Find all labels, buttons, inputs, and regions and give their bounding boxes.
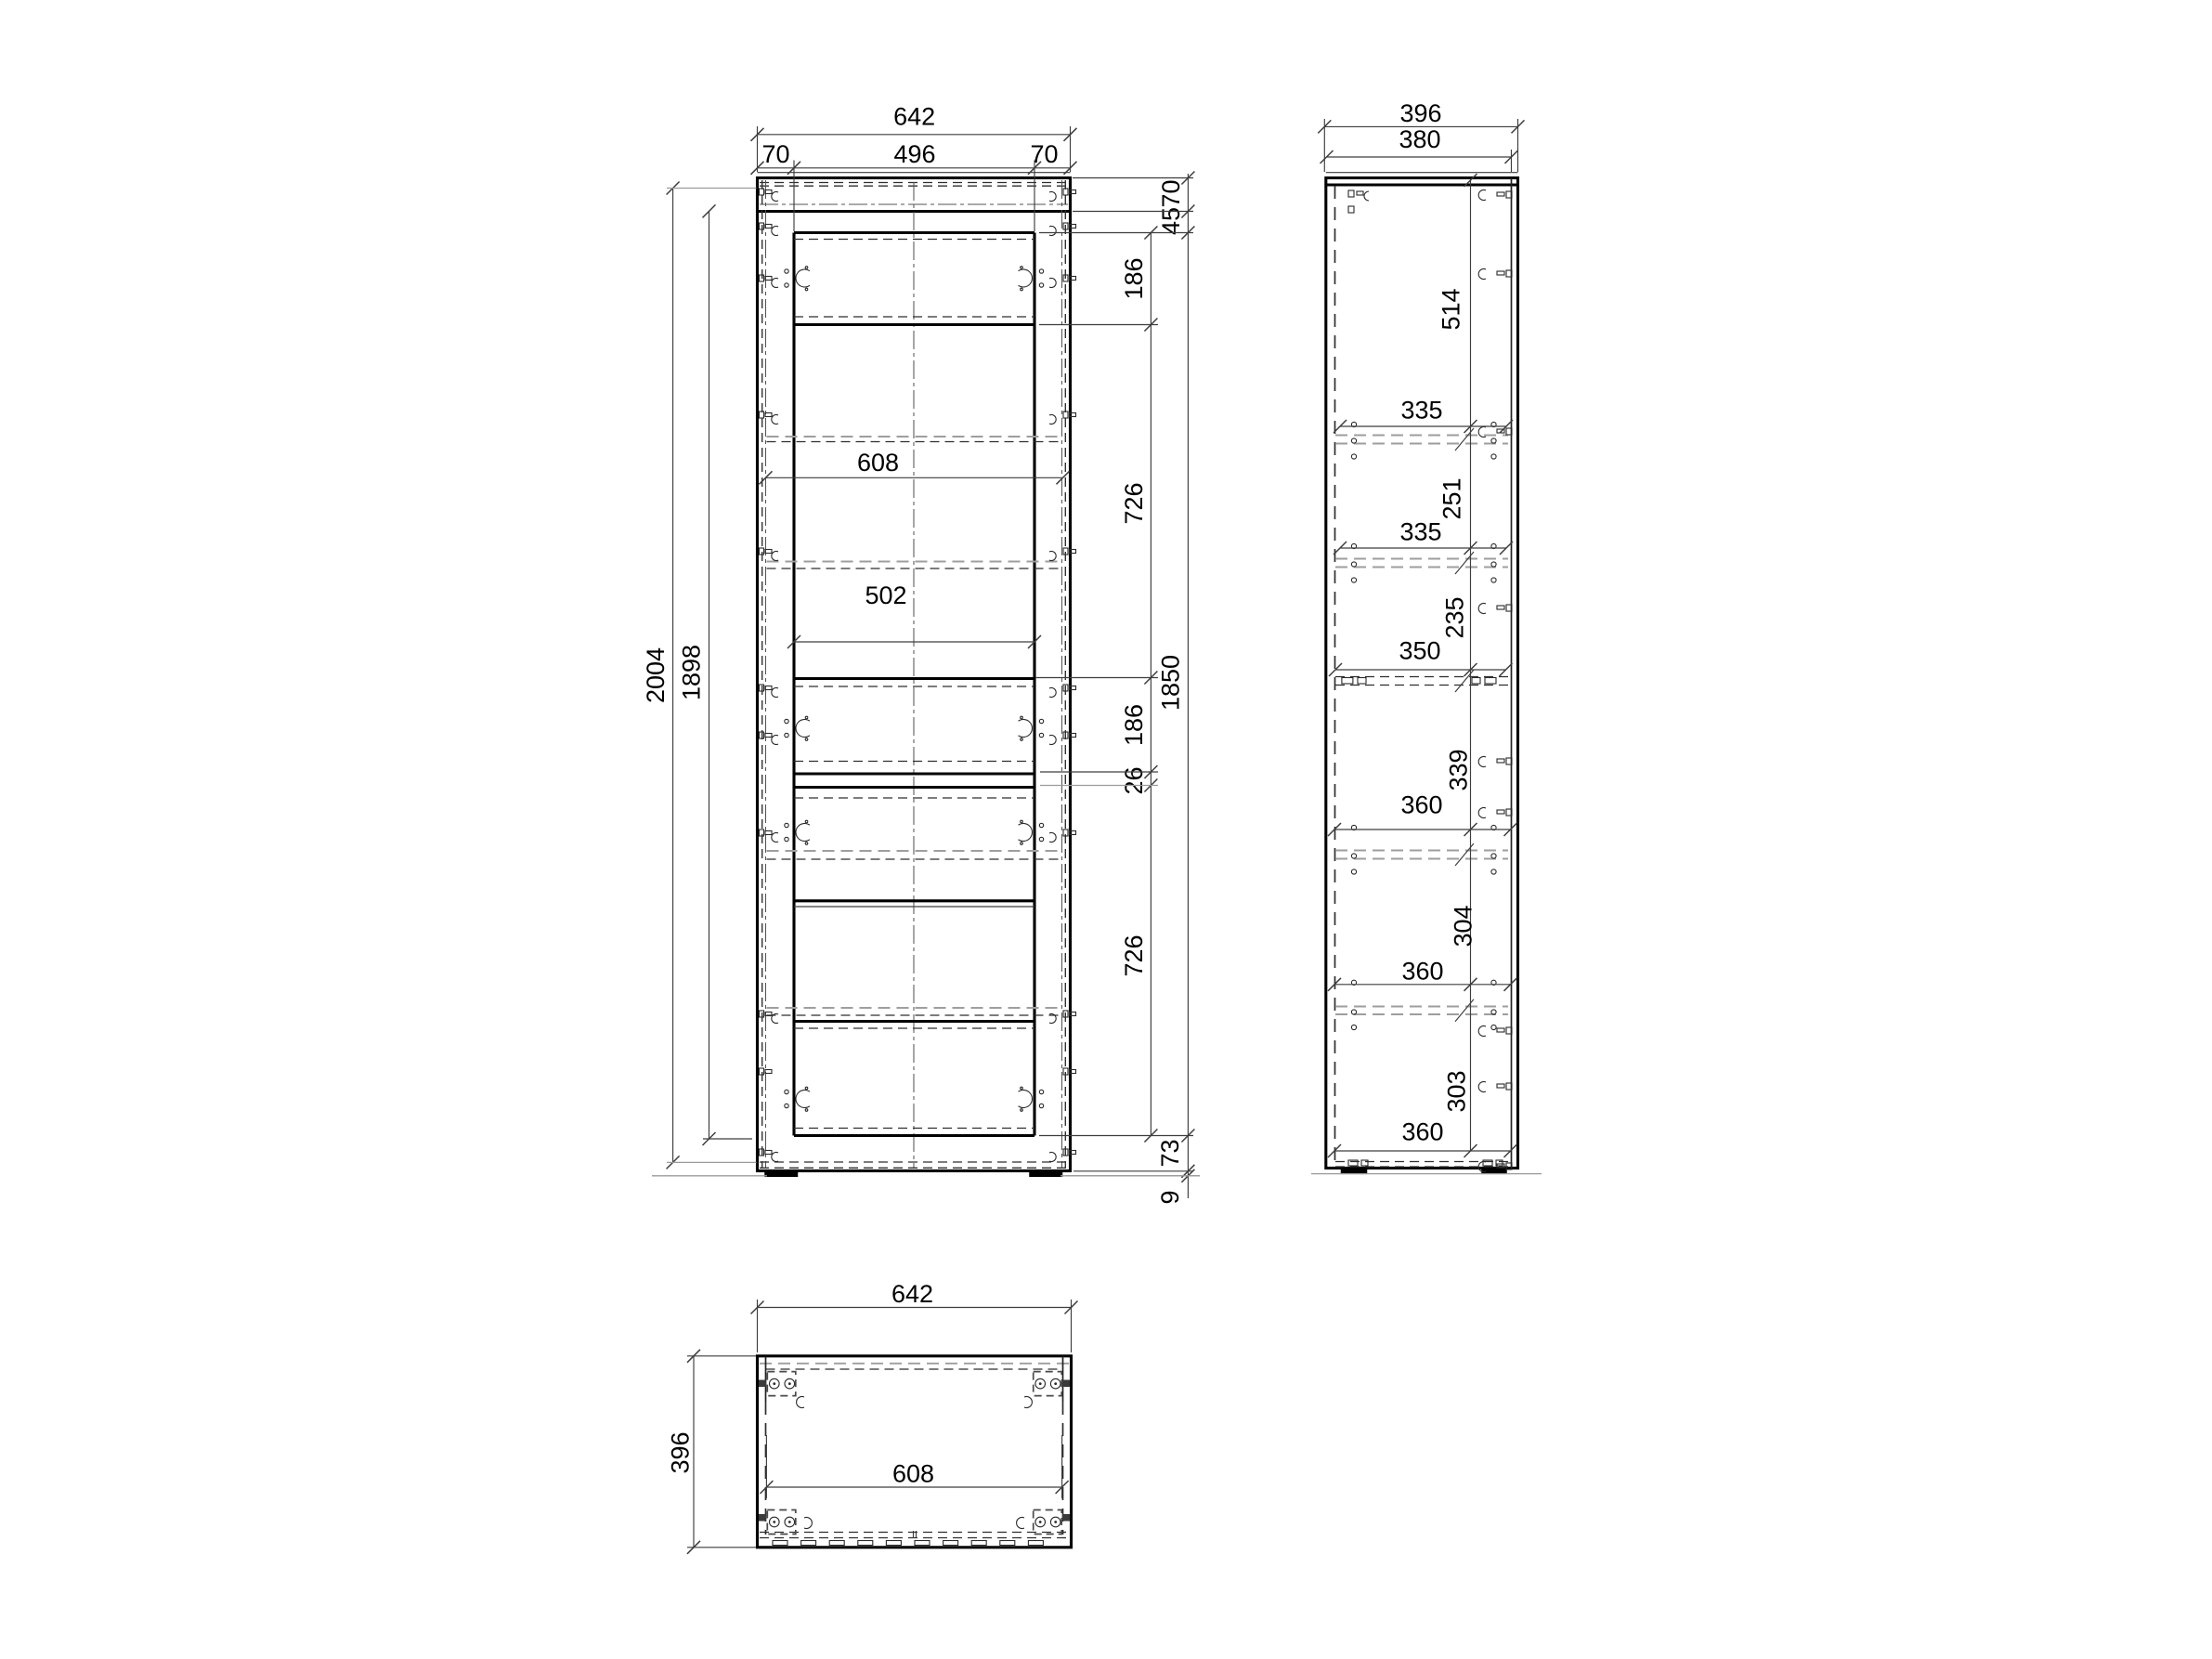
svg-text:335: 335 [1399,518,1441,546]
svg-text:303: 303 [1443,1070,1471,1112]
svg-text:26: 26 [1120,766,1148,794]
svg-text:608: 608 [892,1460,934,1488]
svg-text:360: 360 [1401,1118,1443,1146]
svg-text:396: 396 [667,1431,695,1473]
svg-text:1898: 1898 [678,645,706,700]
svg-text:9: 9 [1156,1190,1184,1204]
svg-text:73: 73 [1156,1139,1184,1167]
svg-text:496: 496 [893,140,935,168]
svg-text:380: 380 [1399,125,1440,153]
svg-text:339: 339 [1445,749,1473,790]
svg-text:235: 235 [1441,596,1469,638]
svg-text:642: 642 [893,103,935,131]
svg-text:514: 514 [1438,288,1465,330]
svg-text:70: 70 [1157,179,1185,207]
svg-text:186: 186 [1120,704,1148,746]
svg-text:726: 726 [1120,482,1148,524]
svg-text:502: 502 [865,581,906,609]
svg-text:360: 360 [1400,791,1442,819]
svg-text:2004: 2004 [642,647,670,703]
svg-text:186: 186 [1120,257,1148,299]
svg-text:726: 726 [1120,934,1148,976]
svg-text:304: 304 [1450,905,1477,947]
svg-text:70: 70 [761,140,789,168]
svg-text:608: 608 [857,449,899,477]
svg-text:396: 396 [1399,99,1441,127]
svg-text:642: 642 [891,1280,933,1308]
svg-text:1850: 1850 [1157,655,1185,711]
svg-text:335: 335 [1400,397,1442,425]
svg-text:251: 251 [1438,477,1466,519]
svg-text:360: 360 [1401,958,1443,986]
svg-text:350: 350 [1399,637,1440,665]
